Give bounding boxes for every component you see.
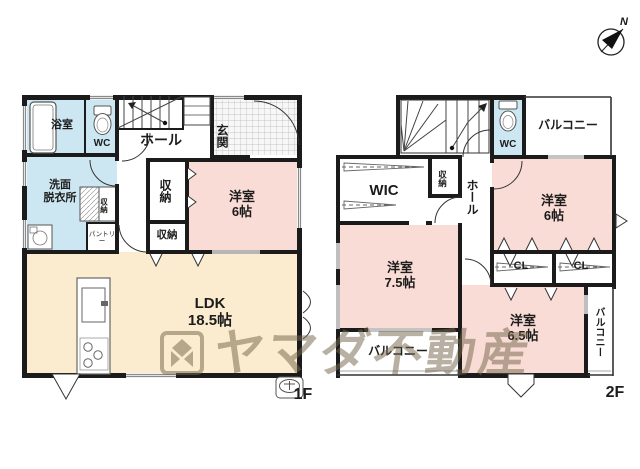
bedroom75-label: 洋室 7.5帖	[368, 261, 432, 291]
closet-small-label: 収納	[100, 192, 108, 218]
wc2-label: WC	[494, 139, 522, 151]
floorplan-canvas: 浴室 WC ホール 玄関 洗面 脱衣所 収納 パントリー 収納 収納 洋室 6帖…	[0, 0, 640, 469]
shoe-cabinet	[184, 97, 210, 125]
balcony-bottom-label: バルコニー	[354, 345, 442, 359]
bedroom65-label: 洋室 6.5帖	[491, 314, 555, 344]
washroom-label: 洗面 脱衣所	[34, 179, 86, 204]
closet-tall-label: 収納	[159, 172, 171, 210]
hall2-label: ホール	[466, 170, 478, 224]
toilet-1f-icon	[94, 106, 111, 135]
closet-2f-label: 収納	[438, 163, 447, 193]
bedroom6-1f-label: 洋室 6帖	[211, 190, 273, 220]
pantry-label: パントリー	[86, 231, 118, 246]
floor1-label: 1F	[286, 386, 320, 404]
cl-left-label: CL	[505, 260, 537, 273]
ldk-room	[26, 252, 298, 373]
cl-right-label: CL	[565, 260, 597, 273]
toilet-2f-icon	[499, 101, 517, 131]
wic-label: WIC	[360, 182, 408, 199]
wc1-label: WC	[88, 138, 116, 150]
stairs-1f	[118, 96, 183, 128]
bath-label: 浴室	[40, 119, 84, 132]
floor2-label: 2F	[598, 384, 632, 402]
compass-icon	[598, 29, 624, 55]
stairs-2f	[401, 100, 489, 153]
hall1-label: ホール	[129, 132, 193, 148]
ldk-label: LDK 18.5帖	[172, 295, 248, 330]
balcony-top-label: バルコニー	[527, 119, 609, 133]
balcony-right-label: バルコニー	[593, 294, 603, 370]
closet-lower-label: 収納	[149, 229, 185, 241]
kitchen-counter	[77, 278, 110, 374]
entrance-label: 玄関	[216, 112, 228, 160]
bedroom6-2f-label: 洋室 6帖	[523, 194, 585, 224]
compass-north-label: N	[620, 16, 628, 28]
washbasin-icon	[28, 225, 52, 249]
